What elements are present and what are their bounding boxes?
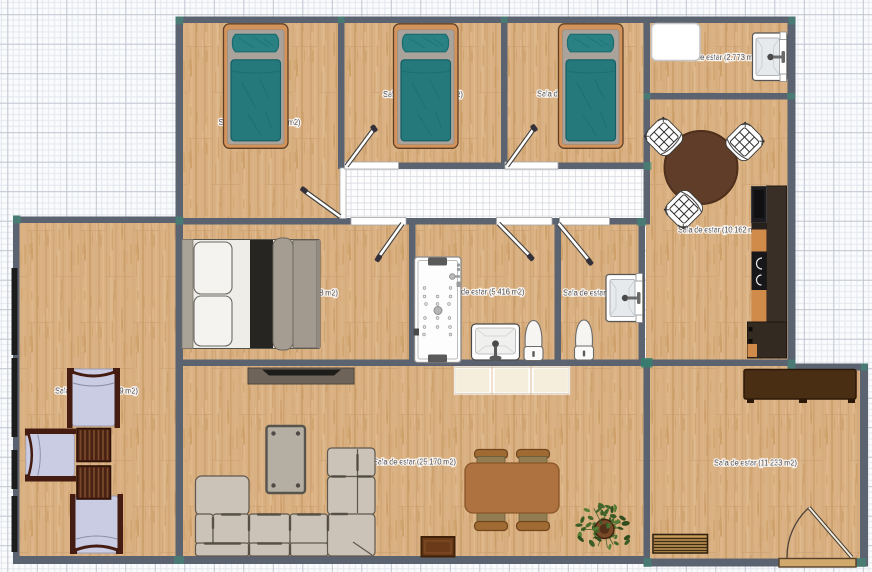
svg-text:Sala de estar (10.162 m2): Sala de estar (10.162 m2) <box>678 226 761 235</box>
svg-text:Sala de estar (25.170 m2): Sala de estar (25.170 m2) <box>373 458 456 467</box>
svg-text:Sala de estar (11.233 m2): Sala de estar (11.233 m2) <box>714 459 797 468</box>
